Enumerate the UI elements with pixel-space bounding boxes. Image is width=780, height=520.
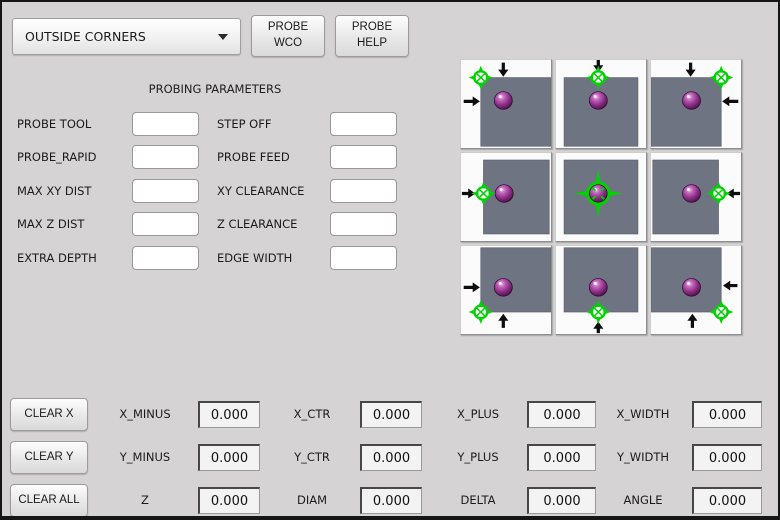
probe-tile-center[interactable]: [555, 152, 647, 242]
result-value-display: [527, 444, 596, 471]
result-label: X_PLUS: [433, 398, 523, 431]
param-label: MAX XY DIST: [17, 179, 129, 203]
probe-direction-arrow-icon: [687, 314, 697, 328]
probe-ball-icon: [589, 185, 607, 203]
result-label: X_MINUS: [100, 398, 190, 431]
probe-tile-top-left[interactable]: [460, 59, 552, 149]
workpiece-square: [651, 248, 721, 312]
probe-ball-icon: [683, 185, 701, 203]
probe-direction-arrow-icon: [464, 282, 480, 292]
probe-panel-window: OUTSIDE CORNERS PROBE WCO PROBE HELP PRO…: [0, 0, 780, 520]
probe-ball-icon: [589, 279, 607, 297]
workpiece-square: [484, 160, 550, 234]
result-label: X_CTR: [267, 398, 357, 431]
probe-direction-arrow-icon: [498, 63, 508, 77]
result-value-display: [527, 487, 596, 514]
param-label: PROBE TOOL: [17, 112, 129, 136]
result-value-display: [360, 487, 422, 514]
result-label: X_WIDTH: [598, 398, 688, 431]
param-label: PROBE FEED: [217, 145, 329, 169]
probe-tile-bottom-left[interactable]: [460, 245, 552, 335]
result-label: Y_WIDTH: [598, 441, 688, 474]
clear-button[interactable]: CLEAR Y: [10, 441, 88, 474]
probe-help-button[interactable]: PROBE HELP: [335, 15, 409, 57]
workpiece-square: [651, 78, 721, 147]
param-label: MAX Z DIST: [17, 212, 129, 236]
param-input-right[interactable]: [330, 179, 397, 203]
param-label: XY CLEARANCE: [217, 179, 329, 203]
probe-direction-arrow-icon: [722, 96, 738, 106]
param-label: PROBE_RAPID: [17, 145, 129, 169]
probe-ball-icon: [683, 92, 701, 110]
result-value-display: [692, 444, 762, 471]
param-label: STEP OFF: [217, 112, 329, 136]
workpiece-square: [481, 248, 551, 312]
probe-ball-icon: [494, 279, 512, 297]
probe-tile-bottom-center[interactable]: [555, 245, 647, 335]
param-input-left[interactable]: [132, 112, 199, 136]
param-input-right[interactable]: [330, 145, 397, 169]
result-value-display: [198, 444, 260, 471]
param-input-left[interactable]: [132, 212, 199, 236]
param-input-right[interactable]: [330, 112, 397, 136]
param-input-right[interactable]: [330, 212, 397, 236]
probe-direction-arrow-icon: [464, 96, 480, 106]
param-input-left[interactable]: [132, 145, 199, 169]
result-label: DIAM: [267, 484, 357, 517]
result-value-display: [198, 401, 260, 428]
param-label: EDGE WIDTH: [217, 246, 329, 270]
probe-direction-arrow-icon: [686, 63, 696, 77]
result-value-display: [692, 487, 762, 514]
probe-tile-top-right[interactable]: [650, 59, 742, 149]
chevron-down-icon: [218, 34, 228, 40]
param-input-left[interactable]: [132, 246, 199, 270]
result-value-display: [692, 401, 762, 428]
result-value-display: [527, 401, 596, 428]
result-label: Y_MINUS: [100, 441, 190, 474]
clear-button[interactable]: CLEAR X: [10, 398, 88, 431]
probe-ball-icon: [683, 279, 701, 297]
result-label: Y_CTR: [267, 441, 357, 474]
result-value-display: [360, 444, 422, 471]
result-label: ANGLE: [598, 484, 688, 517]
probing-parameters-title: PROBING PARAMETERS: [2, 82, 428, 96]
probe-tile-middle-left[interactable]: [460, 152, 552, 242]
probe-ball-icon: [589, 92, 607, 110]
probe-position-grid: [460, 59, 742, 335]
param-input-right[interactable]: [330, 246, 397, 270]
result-label: Z: [100, 484, 190, 517]
probe-wco-button[interactable]: PROBE WCO: [251, 15, 325, 57]
result-label: Y_PLUS: [433, 441, 523, 474]
probe-direction-arrow-icon: [498, 314, 508, 328]
probe-mode-select[interactable]: OUTSIDE CORNERS: [12, 18, 241, 55]
probe-mode-selected-value: OUTSIDE CORNERS: [25, 29, 218, 44]
clear-button[interactable]: CLEAR ALL: [10, 484, 88, 517]
param-label: Z CLEARANCE: [217, 212, 329, 236]
result-label: DELTA: [433, 484, 523, 517]
probe-ball-icon: [494, 92, 512, 110]
probe-tile-top-center[interactable]: [555, 59, 647, 149]
result-value-display: [198, 487, 260, 514]
probe-direction-arrow-icon: [723, 281, 737, 291]
probe-tile-middle-right[interactable]: [650, 152, 742, 242]
result-value-display: [360, 401, 422, 428]
workpiece-square: [564, 78, 638, 147]
param-label: EXTRA DEPTH: [17, 246, 129, 270]
param-input-left[interactable]: [132, 179, 199, 203]
probe-tile-bottom-right[interactable]: [650, 245, 742, 335]
probe-ball-icon: [495, 185, 513, 203]
workpiece-square: [481, 78, 551, 147]
